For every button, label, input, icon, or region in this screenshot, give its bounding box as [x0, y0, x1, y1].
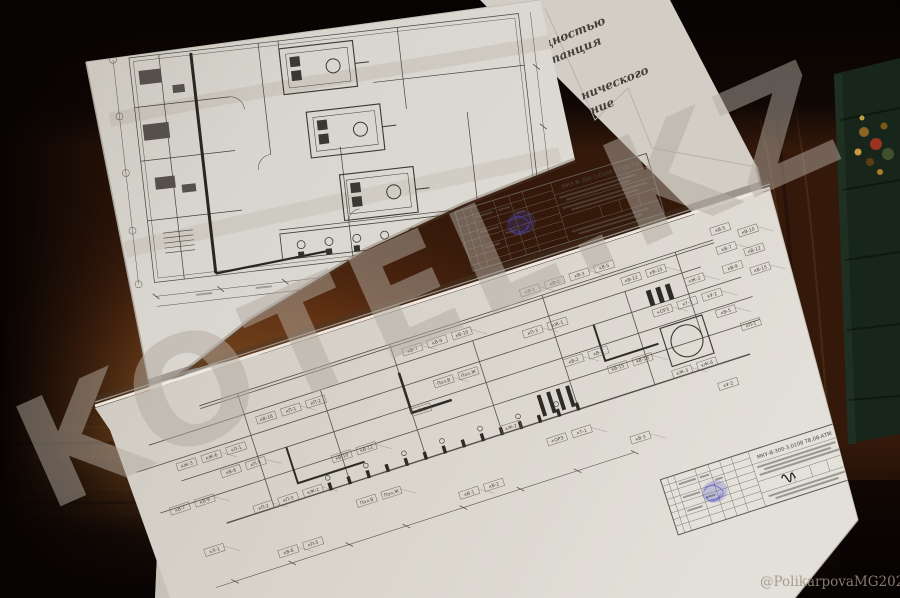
photo-canvas: щностью танция нического ние МКУ-В-300-3 [0, 0, 900, 598]
photo-of-blueprints: щностью танция нического ние МКУ-В-300-3 [0, 0, 900, 598]
photo-credit-watermark: @PolikarpovaMG2020 [760, 574, 900, 590]
